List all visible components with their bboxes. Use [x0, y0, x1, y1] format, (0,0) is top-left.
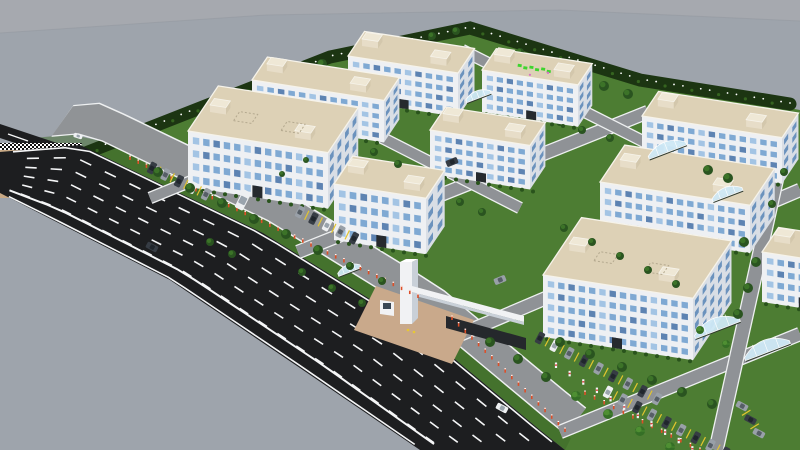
tree [279, 171, 285, 177]
entrance-door [252, 185, 262, 198]
tree [672, 280, 680, 288]
tree [206, 238, 214, 246]
tree [281, 229, 291, 239]
tree [585, 349, 595, 359]
palm-tree [635, 426, 645, 436]
tree [513, 354, 523, 364]
tree [751, 257, 761, 267]
tree [560, 224, 568, 232]
tree [185, 183, 195, 193]
tree [647, 375, 657, 385]
tree [378, 277, 386, 285]
tree [739, 237, 749, 247]
entrance-door [399, 99, 409, 110]
tree [313, 245, 323, 255]
tree [478, 208, 486, 216]
tree [358, 299, 366, 307]
entrance-door [376, 235, 386, 248]
tree [588, 238, 596, 246]
campus-3d-scene [0, 0, 800, 450]
tree [743, 283, 753, 293]
tree [644, 266, 652, 274]
tree [555, 337, 565, 347]
tree [370, 148, 378, 156]
tree [485, 337, 495, 347]
tree [298, 268, 306, 276]
tree [616, 252, 624, 260]
tree [249, 214, 259, 224]
palm-tree [571, 391, 581, 401]
tree [456, 198, 464, 206]
tree [768, 200, 776, 208]
tree [723, 173, 733, 183]
tree [780, 168, 788, 176]
tree [541, 372, 551, 382]
tree [452, 27, 460, 35]
tree [606, 134, 614, 142]
palm-tree [696, 326, 704, 334]
tree [153, 167, 163, 177]
tree [303, 157, 309, 163]
tree [346, 262, 354, 270]
tree [703, 165, 713, 175]
tree [228, 250, 236, 258]
tree [428, 32, 436, 40]
tree [677, 387, 687, 397]
tree [328, 284, 336, 292]
tree [617, 362, 627, 372]
entrance-door [526, 110, 536, 120]
tree [578, 126, 586, 134]
building-left-front[interactable] [188, 86, 358, 212]
palm-tree [603, 409, 613, 419]
tree [623, 89, 633, 99]
tree [599, 81, 609, 91]
tree [707, 399, 717, 409]
palm-tree [722, 340, 730, 348]
tree [733, 309, 743, 319]
viewport-3d-render[interactable] [0, 0, 800, 450]
tree [394, 160, 402, 168]
tree [217, 198, 227, 208]
